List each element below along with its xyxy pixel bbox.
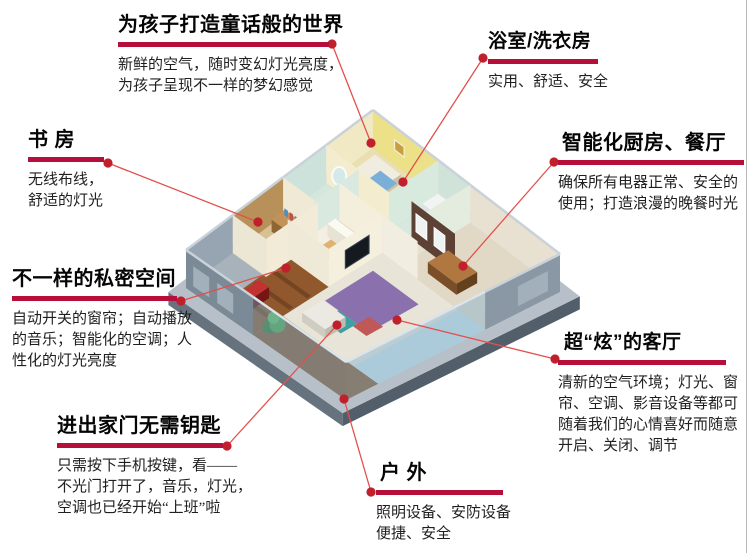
callout-underline (558, 360, 726, 365)
callout-title: 户 外 (376, 461, 551, 485)
callout-body: 新鲜的空气，随时变幻灯光亮度， 为孩子呈现不一样的梦幻感觉 (118, 55, 368, 97)
callout-private-space: 不一样的私密空间 自动开关的窗帘；自动播放 的音乐；智能化的空调；人 性化的灯光… (12, 267, 217, 372)
callout-title: 为孩子打造童话般的世界 (118, 13, 368, 37)
callout-title: 浴室/洗衣房 (488, 30, 673, 54)
callout-title: 智能化厨房、餐厅 (558, 131, 750, 155)
callout-body: 确保所有电器正常、安全的 使用；打造浪漫的晚餐时光 (558, 173, 750, 215)
callout-outdoor: 户 外 照明设备、安防设备 便捷、安全 (376, 461, 551, 545)
callout-underline (118, 42, 329, 47)
callout-underline (488, 59, 598, 64)
callout-title: 不一样的私密空间 (12, 267, 217, 291)
callout-title: 超“炫”的客厅 (558, 331, 750, 355)
callout-underline (12, 296, 177, 301)
callout-body: 清新的空气环境；灯光、窗 帘、空调、影音设备等都可 随着我们的心情喜好而随意 开… (558, 373, 750, 457)
callout-cool-living-room: 超“炫”的客厅 清新的空气环境；灯光、窗 帘、空调、影音设备等都可 随着我们的心… (558, 331, 750, 457)
callout-underline (28, 157, 104, 162)
callout-underline (558, 160, 744, 165)
smart-home-infographic: 为孩子打造童话般的世界 新鲜的空气，随时变幻灯光亮度， 为孩子呈现不一样的梦幻感… (0, 0, 750, 553)
callout-keyless-entry: 进出家门无需钥匙 只需按下手机按键，看—— 不光门打开了，音乐，灯光， 空调也已… (57, 414, 282, 519)
callout-smart-kitchen-dining: 智能化厨房、餐厅 确保所有电器正常、安全的 使用；打造浪漫的晚餐时光 (558, 131, 750, 215)
callout-underline (57, 443, 223, 448)
callout-study-room: 书 房 无线布线， 舒适的灯光 (28, 128, 168, 212)
callout-body: 无线布线， 舒适的灯光 (28, 170, 168, 212)
callout-body: 实用、舒适、安全 (488, 72, 673, 93)
callout-title: 进出家门无需钥匙 (57, 414, 282, 438)
callout-body: 自动开关的窗帘；自动播放 的音乐；智能化的空调；人 性化的灯光亮度 (12, 309, 217, 372)
callout-bathroom-laundry: 浴室/洗衣房 实用、舒适、安全 (488, 30, 673, 93)
callout-body: 只需按下手机按键，看—— 不光门打开了，音乐，灯光， 空调也已经开始“上班”啦 (57, 456, 282, 519)
callout-title: 书 房 (28, 128, 168, 152)
right-edge-border (746, 0, 747, 553)
callout-underline (376, 490, 503, 495)
callout-body: 照明设备、安防设备 便捷、安全 (376, 503, 551, 545)
callout-children-room: 为孩子打造童话般的世界 新鲜的空气，随时变幻灯光亮度， 为孩子呈现不一样的梦幻感… (118, 13, 368, 97)
